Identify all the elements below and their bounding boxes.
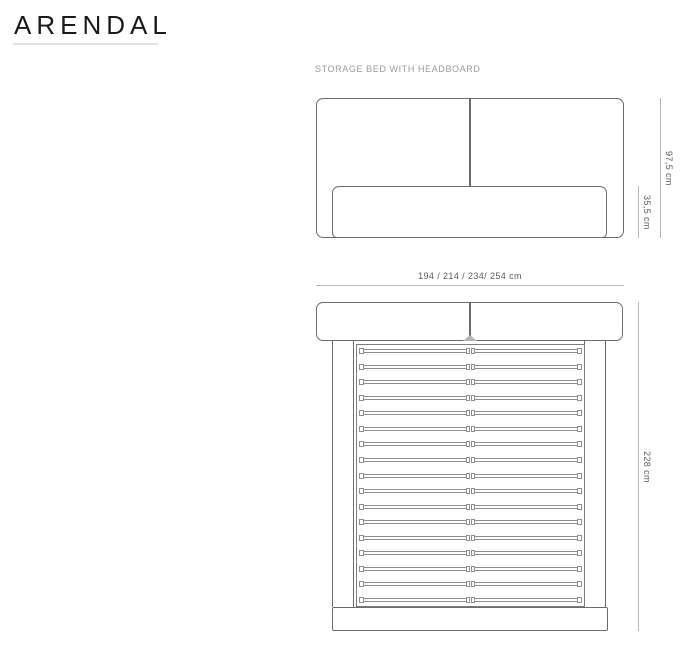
- slat-bar: [475, 582, 577, 586]
- slat-bar: [364, 489, 466, 493]
- width-dimension-line: [316, 285, 624, 286]
- slat-end-cap: [577, 566, 582, 572]
- depth-dimension-label: 228 cm: [641, 302, 653, 631]
- slat-bar: [364, 442, 466, 446]
- slat-bar: [475, 396, 577, 400]
- slat-bar: [475, 505, 577, 509]
- slat: [359, 457, 582, 463]
- product-caption: STORAGE BED WITH HEADBOARD: [315, 64, 480, 74]
- slat-bar: [475, 474, 577, 478]
- slat-bar: [364, 411, 466, 415]
- slat: [359, 426, 582, 432]
- slat-end-cap: [577, 473, 582, 479]
- slat-area: [356, 344, 585, 607]
- width-dimension-label: 194 / 214 / 234/ 254 cm: [316, 271, 624, 281]
- slat-bar: [475, 380, 577, 384]
- slat-bar: [364, 365, 466, 369]
- slat-bar: [364, 458, 466, 462]
- slat: [359, 488, 582, 494]
- slat-bar: [364, 396, 466, 400]
- slat-bar: [364, 427, 466, 431]
- slat-end-cap: [577, 348, 582, 354]
- slat-bar: [475, 365, 577, 369]
- slat-bar: [364, 551, 466, 555]
- slat: [359, 348, 582, 354]
- slat: [359, 519, 582, 525]
- slat-bar: [364, 505, 466, 509]
- slat-end-cap: [577, 426, 582, 432]
- slat-bar: [364, 380, 466, 384]
- slat-bar: [475, 349, 577, 353]
- slat-end-cap: [577, 364, 582, 370]
- slat: [359, 504, 582, 510]
- slat: [359, 441, 582, 447]
- slat-bar: [475, 567, 577, 571]
- slat-bar: [364, 567, 466, 571]
- slat-end-cap: [577, 504, 582, 510]
- slat-bar: [475, 598, 577, 602]
- slat-bar: [364, 598, 466, 602]
- slat-end-cap: [577, 488, 582, 494]
- slat-end-cap: [577, 581, 582, 587]
- depth-dimension-line: [638, 302, 639, 631]
- slat: [359, 364, 582, 370]
- slat-bar: [364, 520, 466, 524]
- slat: [359, 473, 582, 479]
- slat-bar: [475, 536, 577, 540]
- slat-end-cap: [577, 550, 582, 556]
- slat-bar: [364, 582, 466, 586]
- slat: [359, 566, 582, 572]
- slat-end-cap: [577, 410, 582, 416]
- base-height-dimension-label: 35,5 cm: [641, 186, 653, 238]
- slat-end-cap: [577, 379, 582, 385]
- footboard-outline: [332, 607, 608, 631]
- slat-bar: [475, 458, 577, 462]
- total-height-dimension-label: 97,5 cm: [663, 98, 675, 238]
- slat-end-cap: [577, 441, 582, 447]
- slat: [359, 410, 582, 416]
- base-height-dimension-line: [638, 186, 639, 238]
- right-side-rail: [584, 341, 606, 607]
- front-bed-base-outline: [332, 186, 607, 238]
- slat: [359, 395, 582, 401]
- slat-bar: [475, 442, 577, 446]
- slat-bar: [475, 411, 577, 415]
- total-height-dimension-line: [660, 98, 661, 238]
- slat-bar: [475, 427, 577, 431]
- slat-end-cap: [577, 519, 582, 525]
- slat-end-cap: [577, 395, 582, 401]
- slat: [359, 550, 582, 556]
- page-title: ARENDAL: [14, 10, 172, 41]
- title-underline: [13, 43, 158, 45]
- front-headboard-divider-line: [469, 98, 471, 187]
- slat-bar: [364, 349, 466, 353]
- slat-bar: [475, 489, 577, 493]
- slat-bar: [364, 536, 466, 540]
- slat-end-cap: [577, 457, 582, 463]
- slat: [359, 379, 582, 385]
- headboard-seam-shadow: [463, 335, 477, 341]
- slat-bar: [364, 474, 466, 478]
- slat: [359, 535, 582, 541]
- slat-end-cap: [577, 597, 582, 603]
- slat-bar: [475, 520, 577, 524]
- slat-bar: [475, 551, 577, 555]
- slat-end-cap: [577, 535, 582, 541]
- slat: [359, 597, 582, 603]
- left-side-rail: [332, 341, 354, 607]
- slat: [359, 581, 582, 587]
